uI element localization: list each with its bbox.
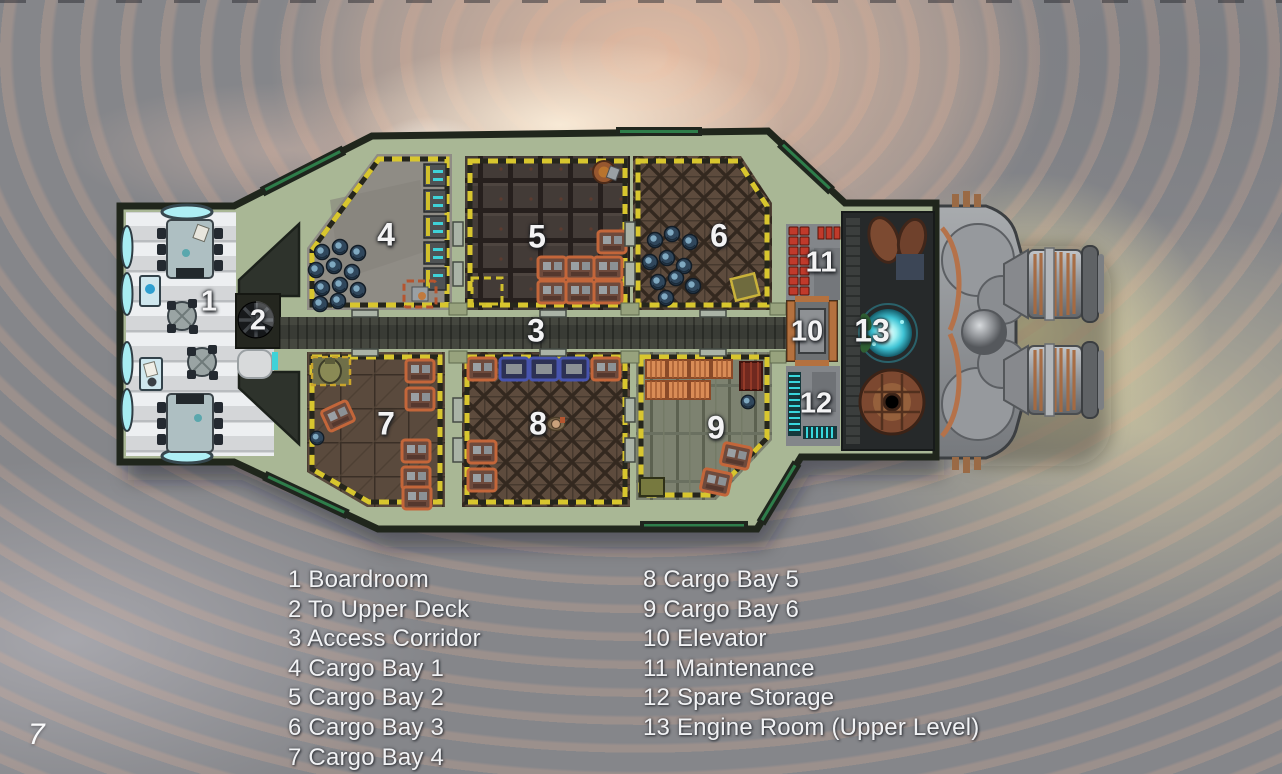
legend-item-cargo-bay-2: 5 Cargo Bay 2 — [288, 683, 481, 713]
room-label-11: 11 — [806, 247, 837, 280]
room-label-13: 13 — [854, 313, 890, 350]
legend-item-boardroom: 1 Boardroom — [288, 565, 481, 595]
room-label-5: 5 — [528, 219, 546, 256]
page-number: 7 — [28, 718, 45, 752]
room-label-2: 2 — [250, 305, 266, 338]
legend-item-upper-deck: 2 To Upper Deck — [288, 595, 481, 625]
door-oval-top — [162, 205, 212, 219]
room-label-9: 9 — [707, 410, 725, 447]
room-label-8: 8 — [529, 406, 547, 443]
legend-item-maintenance: 11 Maintenance — [643, 654, 979, 684]
legend-item-elevator: 10 Elevator — [643, 624, 979, 654]
legend-item-access-corridor: 3 Access Corridor — [288, 624, 481, 654]
legend-item-cargo-bay-6: 9 Cargo Bay 6 — [643, 595, 979, 625]
yellow-crate — [731, 273, 760, 300]
legend-item-spare-storage: 12 Spare Storage — [643, 683, 979, 713]
crew-figure — [547, 417, 565, 431]
legend-column-1: 1 Boardroom 2 To Upper Deck 3 Access Cor… — [288, 565, 481, 772]
engine-nozzle-bottom — [1004, 342, 1104, 418]
room-label-10: 10 — [791, 316, 823, 349]
legend-item-engine-room: 13 Engine Room (Upper Level) — [643, 713, 979, 743]
room-label-4: 4 — [377, 217, 395, 254]
legend-item-cargo-bay-3: 6 Cargo Bay 3 — [288, 713, 481, 743]
engine-core-sphere — [962, 310, 1006, 354]
engine-nozzle-top — [1004, 246, 1104, 322]
room-cargo-bay-3 — [633, 156, 772, 310]
room-label-1: 1 — [201, 286, 217, 319]
engine-turbine — [860, 370, 924, 434]
room-label-3: 3 — [527, 313, 545, 350]
legend-item-cargo-bay-5: 8 Cargo Bay 5 — [643, 565, 979, 595]
ship-deck-plan — [0, 0, 1282, 774]
green-crate — [640, 478, 664, 496]
room-label-12: 12 — [800, 388, 832, 421]
conference-table-top — [157, 220, 223, 278]
shelf-units — [424, 164, 446, 290]
legend-item-cargo-bay-4: 7 Cargo Bay 4 — [288, 743, 481, 773]
legend-column-2: 8 Cargo Bay 5 9 Cargo Bay 6 10 Elevator … — [643, 565, 979, 743]
room-cargo-bay-2 — [465, 156, 630, 310]
room-label-7: 7 — [377, 406, 395, 443]
pallet-canister — [312, 357, 350, 385]
conference-table-bottom — [157, 394, 223, 452]
room-label-6: 6 — [710, 218, 728, 255]
legend-item-cargo-bay-1: 4 Cargo Bay 1 — [288, 654, 481, 684]
